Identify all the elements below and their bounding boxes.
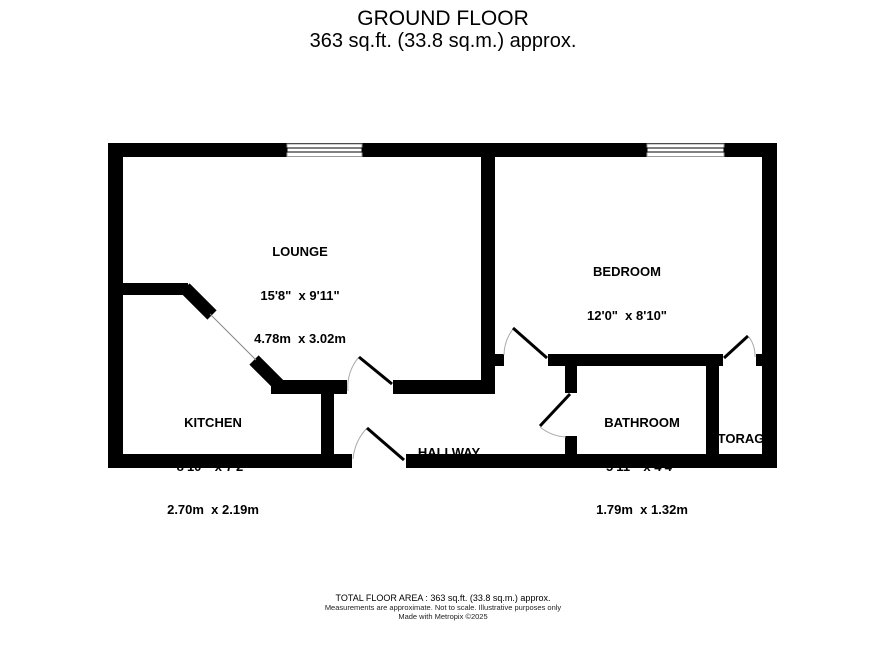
wall-bedroom-door-jamb (493, 354, 504, 366)
wall-lounge-bedroom-divider (481, 150, 495, 394)
room-dims-imperial: 12'0" x 8'10" (537, 309, 717, 324)
room-dims-metric: 3.65m x 2.69m (537, 352, 717, 367)
wall-kitchen-hallway-divider (321, 382, 334, 458)
storage-door-leaf (724, 336, 748, 358)
bedroom-door-arc (504, 329, 513, 355)
room-label-kitchen: KITCHEN 8'10" x 7'2" 2.70m x 2.19m (123, 387, 303, 547)
room-label-bedroom: BEDROOM 12'0" x 8'10" 3.65m x 2.69m (537, 236, 717, 396)
footer-credit: Made with Metropix ©2025 (0, 613, 886, 622)
room-name: BATHROOM (552, 416, 732, 431)
room-label-hallway: HALLWAY (389, 417, 509, 490)
wall-lounge-bottom-right (393, 380, 495, 394)
room-label-lounge: LOUNGE 15'8" x 9'11" 4.78m x 3.02m (210, 216, 390, 376)
footer-area: TOTAL FLOOR AREA : 363 sq.ft. (33.8 sq.m… (0, 593, 886, 621)
storage-door-arc (749, 337, 755, 357)
lounge-window (287, 144, 362, 157)
floorplan-page: GROUND FLOOR 363 sq.ft. (33.8 sq.m.) app… (0, 0, 886, 649)
bedroom-window (647, 144, 724, 157)
floorplan-canvas (0, 0, 886, 649)
room-dims-imperial: 15'8" x 9'11" (210, 289, 390, 304)
room-dims-metric: 2.70m x 2.19m (123, 503, 303, 518)
room-dims-metric: 1.79m x 1.32m (552, 503, 732, 518)
room-name: LOUNGE (210, 245, 390, 260)
room-name: BEDROOM (537, 265, 717, 280)
room-name: KITCHEN (123, 416, 303, 431)
room-label-bathroom: BATHROOM 5'11" x 4'4" 1.79m x 1.32m (552, 387, 732, 547)
room-dims-imperial: 8'10" x 7'2" (123, 460, 303, 475)
room-name: HALLWAY (389, 446, 509, 461)
room-dims-imperial: 5'11" x 4'4" (552, 460, 732, 475)
room-dims-metric: 4.78m x 3.02m (210, 332, 390, 347)
wall-storage-top-right (756, 354, 768, 366)
wall-kitchen-top (120, 283, 188, 295)
